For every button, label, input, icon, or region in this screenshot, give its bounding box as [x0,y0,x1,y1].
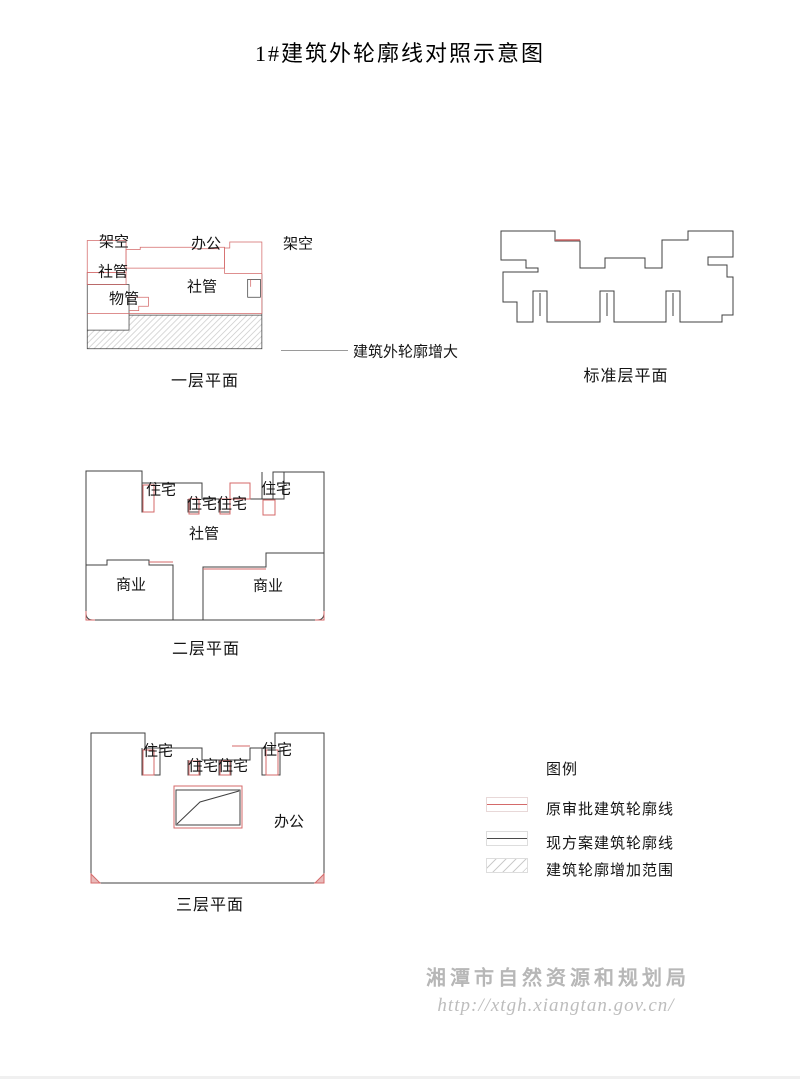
floor3-plan-drawing [85,725,335,890]
floor2-plan-drawing [85,468,330,628]
floor3-room-zhuzhai-right: 住宅 [262,744,292,759]
legend-swatch-increase-hatch [486,858,528,873]
floor2-caption: 二层平面 [172,642,240,658]
floor1-increase-hatch [87,315,262,349]
standard-caption: 标准层平面 [583,369,668,385]
floor3-room-bangong: 办公 [274,816,304,831]
floor1-room-jiakong-left: 架空 [99,236,129,251]
red-line-sample [487,804,527,805]
floor3-room-zhuzhai-left: 住宅 [143,745,173,760]
floor2-room-sheguan: 社管 [189,528,219,543]
page-title: 1#建筑外轮廓线对照示意图 [0,36,800,68]
black-line-sample [487,838,527,839]
leader-line [281,350,348,351]
legend-label-current: 现方案建筑轮廓线 [546,832,674,853]
floor2-room-zhuzhai-mid1: 住宅 [187,498,217,513]
floor3-room-zhuzhai-mid1: 住宅 [188,760,218,775]
standard-current-outline [501,231,733,322]
legend-swatch-approved-line [486,797,528,812]
floor2-room-shangye-right: 商业 [253,580,283,595]
floor3-caption: 三层平面 [176,898,244,914]
legend-label-increase: 建筑轮廓增加范围 [546,859,674,880]
floor1-room-jiakong-right: 架空 [283,238,313,253]
standard-plan-drawing [495,225,740,330]
watermark-url: http://xtgh.xiangtan.gov.cn/ [437,995,674,1017]
increase-annotation: 建筑外轮廓增大 [353,341,458,362]
floor2-room-shangye-left: 商业 [116,579,146,594]
floor2-room-zhuzhai-right: 住宅 [261,483,291,498]
watermark-org: 湘潭市自然资源和规划局 [426,962,690,991]
floor2-room-zhuzhai-mid2: 住宅 [217,498,247,513]
floor1-room-wuguan: 物管 [109,293,139,308]
floor2-room-zhuzhai-left: 住宅 [146,484,176,499]
legend-swatch-current-line [486,831,528,846]
floor1-room-sheguan-small: 社管 [98,266,128,281]
floor1-room-bangong: 办公 [191,238,221,253]
drawing-sheet: 1#建筑外轮廓线对照示意图 [0,0,800,1079]
floor1-room-sheguan: 社管 [187,281,217,296]
floor1-caption: 一层平面 [171,374,239,390]
legend-label-approved: 原审批建筑轮廓线 [546,798,674,819]
legend-title: 图例 [546,758,578,779]
floor3-room-zhuzhai-mid2: 住宅 [218,760,248,775]
